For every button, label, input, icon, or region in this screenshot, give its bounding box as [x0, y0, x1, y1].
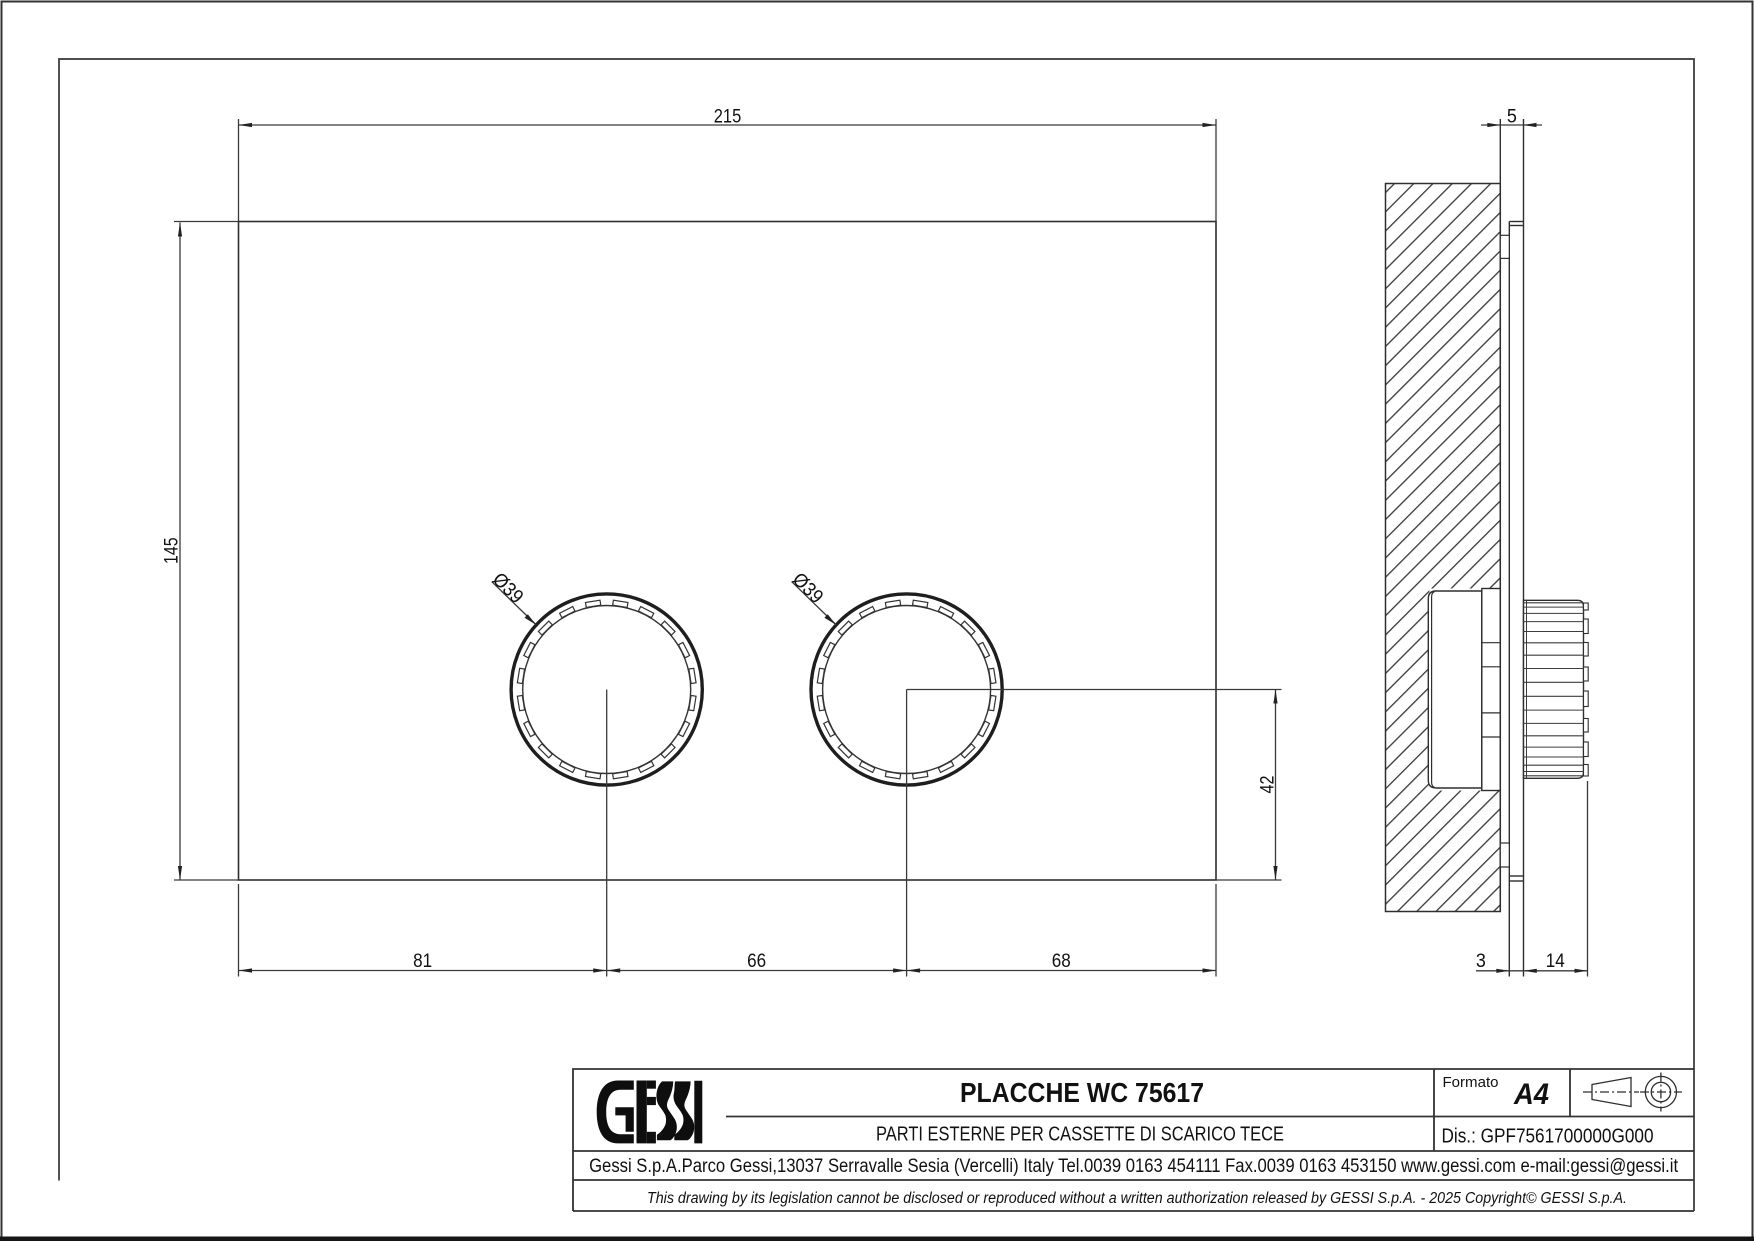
svg-text:215: 215 [714, 106, 742, 128]
svg-text:PARTI ESTERNE PER CASSETTE DI: PARTI ESTERNE PER CASSETTE DI SCARICO TE… [876, 1124, 1284, 1146]
svg-text:3: 3 [1476, 950, 1486, 972]
svg-text:145: 145 [161, 537, 183, 564]
svg-text:This drawing by its legislatio: This drawing by its legislation cannot b… [647, 1190, 1627, 1207]
svg-text:66: 66 [747, 950, 766, 972]
svg-text:PLACCHE WC 75617: PLACCHE WC 75617 [960, 1077, 1204, 1108]
svg-text:81: 81 [413, 950, 432, 972]
svg-text:Formato: Formato [1443, 1075, 1499, 1091]
svg-text:14: 14 [1546, 950, 1565, 972]
svg-text:A4: A4 [1513, 1078, 1549, 1111]
svg-text:42: 42 [1257, 776, 1279, 794]
svg-text:68: 68 [1052, 950, 1071, 972]
svg-text:Dis.: GPF7561700000G000: Dis.: GPF7561700000G000 [1442, 1126, 1654, 1148]
svg-text:Gessi S.p.A.Parco Gessi,13037: Gessi S.p.A.Parco Gessi,13037 Serravalle… [589, 1156, 1679, 1177]
svg-text:5: 5 [1507, 106, 1517, 128]
